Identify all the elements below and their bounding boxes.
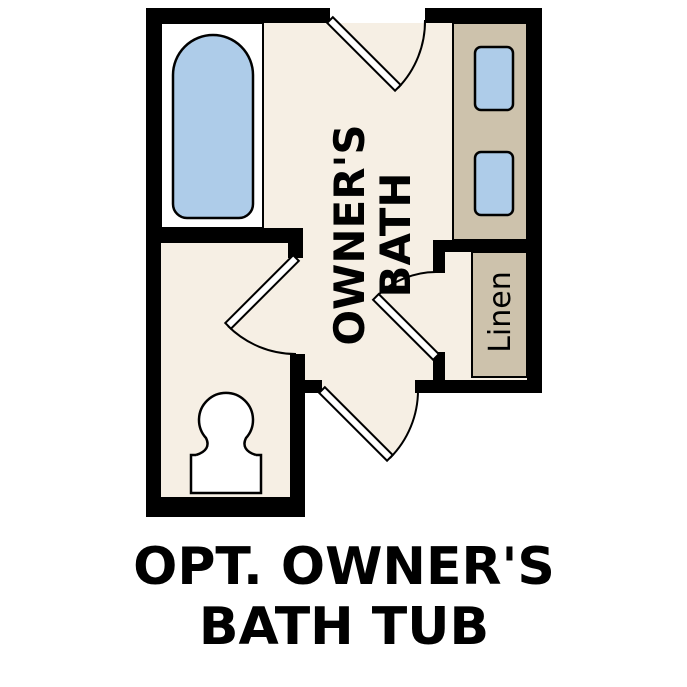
wall-top-right: [425, 8, 542, 23]
linen-label: Linen: [483, 271, 518, 353]
wall-divider-stub: [288, 228, 303, 258]
caption-line2: BATH TUB: [199, 597, 489, 657]
sink-bottom: [475, 152, 513, 215]
wall-left: [146, 8, 161, 517]
wall-entry-left-stub: [305, 380, 322, 393]
bathtub: [173, 35, 253, 218]
wall-toilet-bottom: [146, 497, 305, 517]
toilet-tank: [191, 455, 261, 493]
wall-bottom-right: [415, 380, 542, 393]
room-label-line1: OWNER'S: [325, 124, 374, 345]
wall-right: [527, 8, 542, 393]
room-label-line2: BATH: [371, 172, 420, 297]
wall-toilet-right: [290, 354, 305, 517]
caption-line1: OPT. OWNER'S: [133, 537, 555, 597]
wall-under-counter: [433, 240, 542, 252]
sink-top: [475, 47, 513, 110]
wall-linen-stub-upper: [433, 252, 445, 273]
wall-top-left: [146, 8, 330, 23]
floor-plan-drawing: OWNER'S BATH Linen OPT. OWNER'S BATH TUB: [0, 0, 687, 687]
floor-plan-page: OWNER'S BATH Linen OPT. OWNER'S BATH TUB: [0, 0, 687, 687]
wall-divider: [146, 228, 303, 243]
